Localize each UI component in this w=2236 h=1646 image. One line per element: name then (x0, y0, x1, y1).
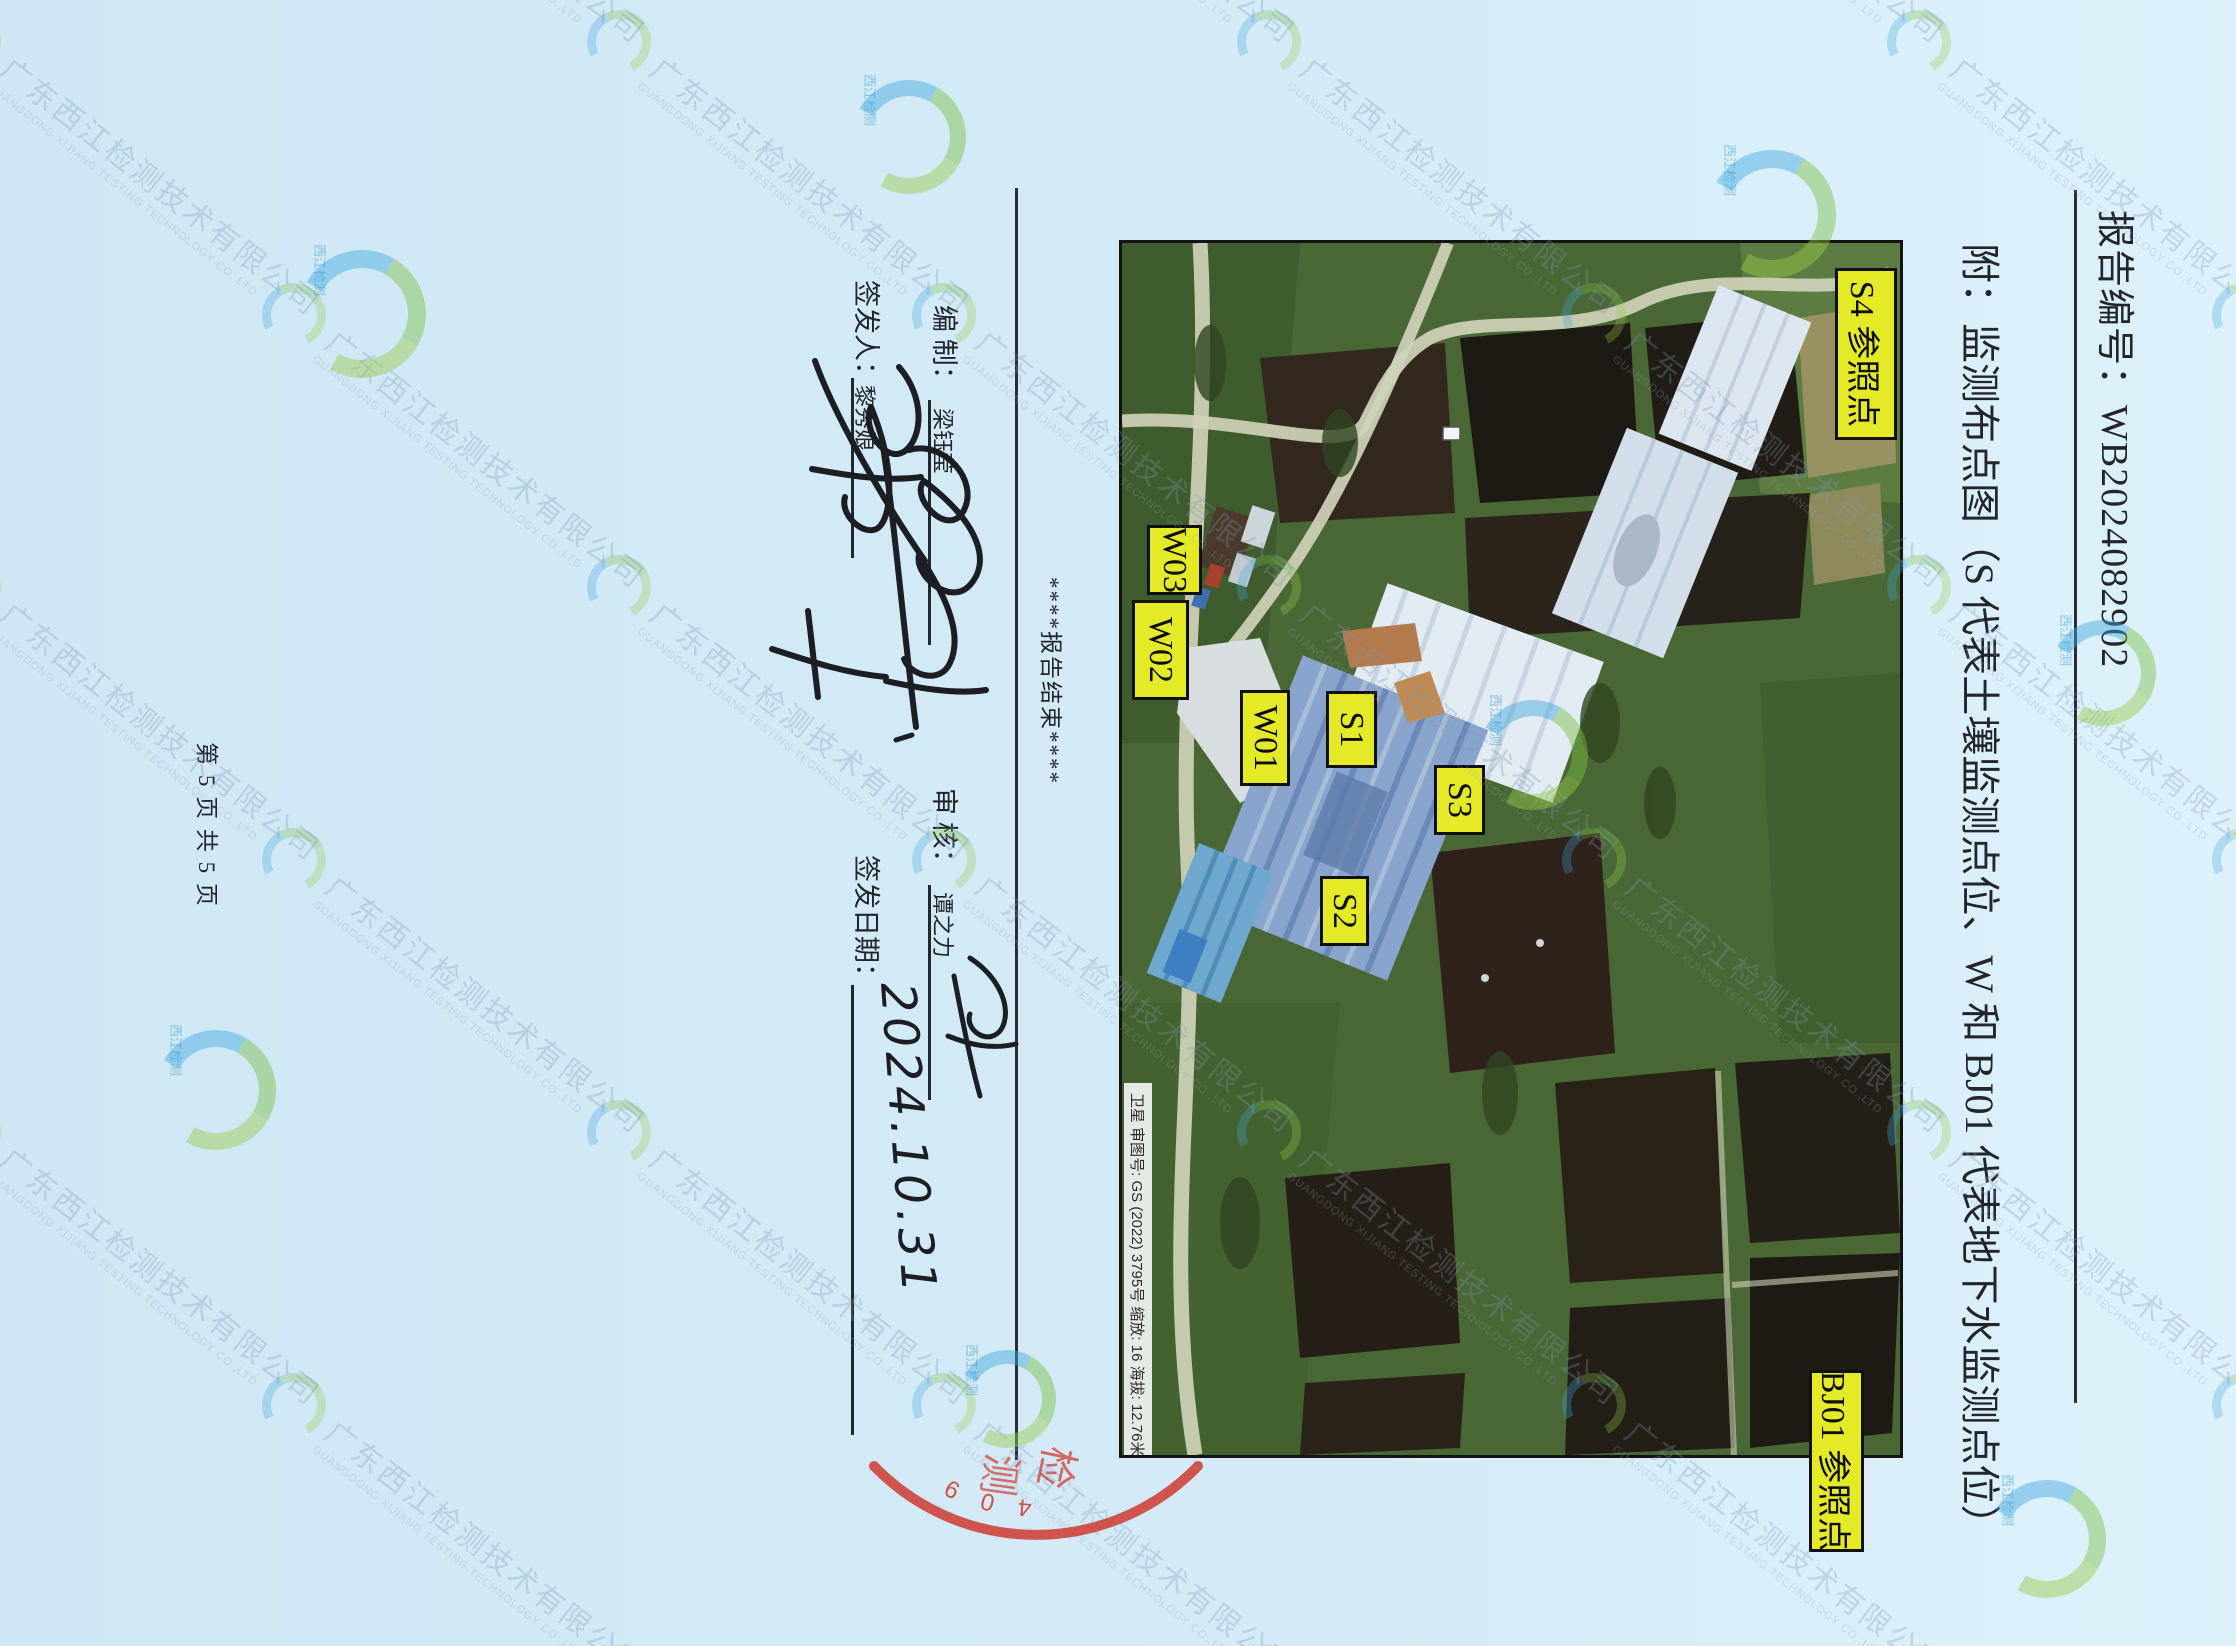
watermark-company-cn: 广东西江检测技术有限公司 (0, 46, 331, 324)
reviewed-by-label: 审 核： (927, 788, 966, 876)
xijiang-logo-icon (0, 2, 9, 83)
watermark-tile: 广东西江检测技术有限公司GUANGDONG XIJIANG TESTING TE… (574, 1632, 984, 1646)
xijiang-logo-icon (579, 2, 660, 83)
xijiang-logo-text: 西江检测 (1721, 144, 1740, 196)
issue-date-label: 签发日期： (849, 855, 888, 990)
watermark-tile: 广东西江检测技术有限公司GUANGDONG XIJIANG TESTING TE… (249, 1360, 659, 1646)
watermark-tile: 广东西江检测技术有限公司GUANGDONG XIJIANG TESTING TE… (0, 1087, 334, 1427)
watermark-tile: 广东西江检测技术有限公司GUANGDONG XIJIANG TESTING TE… (1549, 0, 1959, 65)
watermark-tile: 广东西江检测技术有限公司GUANGDONG XIJIANG TESTING TE… (1874, 542, 2236, 882)
issue-date-line (851, 985, 854, 1435)
watermark-company-cn: 广东西江检测技术有限公司 (642, 46, 981, 324)
watermark-company-en: GUANGDONG XIJIANG TESTING TECHNOLOGY CO.… (960, 1443, 1279, 1646)
xijiang-logo-icon (1879, 1637, 1960, 1646)
xijiang-logo-icon (579, 1092, 660, 1173)
watermark-tile: 广东西江检测技术有限公司GUANGDONG XIJIANG TESTING TE… (249, 815, 659, 1155)
footer-rule (1015, 188, 1018, 1460)
issue-date-handwritten: 2024.10.31 (869, 980, 947, 1298)
watermark-tile: 广东西江检测技术有限公司GUANGDONG XIJIANG TESTING TE… (0, 0, 334, 337)
map-label-s2: S2 (1320, 876, 1369, 946)
report-end-text: ****报告结束**** (1036, 577, 1070, 785)
page-number: 第 5 页 共 5 页 (192, 700, 226, 950)
watermark-company-en: GUANGDONG XIJIANG TESTING TECHNOLOGY CO.… (310, 353, 629, 606)
xijiang-logo-icon (284, 236, 441, 393)
xijiang-logo-icon (579, 547, 660, 628)
watermark-tile: 广东西江检测技术有限公司GUANGDONG XIJIANG TESTING TE… (1874, 1632, 2236, 1646)
watermark-company-cn: 广东西江检测技术有限公司 (317, 1409, 656, 1646)
xijiang-logo-icon (1229, 2, 1310, 83)
xijiang-logo-icon (0, 1092, 9, 1173)
watermark-company-en: GUANGDONG XIJIANG TESTING TECHNOLOGY CO.… (960, 0, 1279, 62)
report-page: 报告编号：WB2024082902 附：监测布点图（S 代表土壤监测点位、W 和… (0, 0, 2236, 1646)
xijiang-logo-text: 西江检测 (963, 1344, 982, 1396)
watermark-tile: 广东西江检测技术有限公司GUANGDONG XIJIANG TESTING TE… (1874, 0, 2236, 337)
map-label-w01: W01 (1240, 690, 1290, 786)
watermark-company-cn: 广东西江检测技术有限公司 (0, 591, 331, 869)
dirt-orange (1342, 623, 1422, 668)
watermark-tile: 广东西江检测技术有限公司GUANGDONG XIJIANG TESTING TE… (899, 0, 1309, 65)
watermark-tile: 广东西江检测技术有限公司GUANGDONG XIJIANG TESTING TE… (249, 0, 659, 65)
watermark-company-en: GUANGDONG XIJIANG TESTING TECHNOLOGY CO.… (310, 0, 629, 62)
map-label-s1: S1 (1326, 691, 1377, 768)
watermark-tile: 广东西江检测技术有限公司GUANGDONG XIJIANG TESTING TE… (249, 270, 659, 610)
xijiang-logo-icon (2204, 1365, 2236, 1446)
xijiang-logo-icon (0, 1637, 9, 1646)
watermark-tile: 广东西江检测技术有限公司GUANGDONG XIJIANG TESTING TE… (2199, 815, 2236, 1155)
satellite-map-graphic: 卫星 审图号: GS (2022) 3795号 缩放: 16 海拔: 12.76… (1122, 243, 1900, 1455)
watermark-company-en: GUANGDONG XIJIANG TESTING TECHNOLOGY CO.… (1610, 1443, 1929, 1646)
watermark-tile: 广东西江检测技术有限公司GUANGDONG XIJIANG TESTING TE… (0, 542, 334, 882)
map-label-w03: W03 (1147, 525, 1202, 595)
xijiang-logo-text: 西江检测 (861, 74, 880, 126)
watermark-company-en: GUANGDONG XIJIANG TESTING TECHNOLOGY CO.… (0, 625, 304, 878)
xijiang-logo-icon (254, 1365, 335, 1446)
xijiang-logo-icon (1229, 1637, 1310, 1646)
watermark-company-cn: 广东西江检测技术有限公司 (0, 1136, 331, 1414)
watermark-company-cn: 广东西江检测技术有限公司 (317, 319, 656, 597)
pond-center (1430, 833, 1615, 1073)
watermark-tile: 广东西江检测技术有限公司GUANGDONG XIJIANG TESTING TE… (2199, 270, 2236, 610)
watermark-company-cn: 广东西江检测技术有限公司 (317, 0, 656, 52)
xijiang-logo-icon (1879, 2, 1960, 83)
map-label-s3: S3 (1434, 765, 1485, 835)
scanned-report-screenshot: 报告编号：WB2024082902 附：监测布点图（S 代表土壤监测点位、W 和… (0, 0, 2236, 1646)
map-label-w02: W02 (1132, 600, 1189, 700)
xijiang-logo-icon (947, 1339, 1067, 1459)
watermark-company-en: GUANGDONG XIJIANG TESTING TECHNOLOGY CO.… (635, 80, 954, 333)
map-attribution-text: 卫星 审图号: GS (2022) 3795号 缩放: 16 海拔: 12.76… (1128, 1093, 1145, 1455)
svg-text:检: 检 (1027, 1442, 1082, 1493)
watermark-tile: 广东西江检测技术有限公司GUANGDONG XIJIANG TESTING TE… (2199, 1360, 2236, 1646)
watermark-company-cn: 广东西江检测技术有限公司 (1617, 0, 1956, 52)
xijiang-logo-icon (254, 820, 335, 901)
xijiang-logo-icon (254, 275, 335, 356)
xijiang-logo-icon (2204, 275, 2236, 356)
prepared-by-label: 编 制： (927, 305, 966, 393)
xijiang-logo-icon (2204, 820, 2236, 901)
signature-tanzhili (940, 948, 1030, 1108)
attachment-title: 附：监测布点图（S 代表土壤监测点位、W 和 BJ01 代表地下水监测点位） (1954, 243, 2012, 1545)
header-rule (2074, 190, 2077, 1403)
watermark-company-en: GUANGDONG XIJIANG TESTING TECHNOLOGY CO.… (0, 80, 304, 333)
watermark-tile: 广东西江检测技术有限公司GUANGDONG XIJIANG TESTING TE… (1874, 1087, 2236, 1427)
road-sign (1443, 427, 1460, 440)
xijiang-logo-text: 西江检测 (311, 244, 330, 296)
watermark-company-en: GUANGDONG XIJIANG TESTING TECHNOLOGY CO.… (1610, 0, 1929, 62)
report-number: 报告编号：WB2024082902 (2091, 210, 2146, 668)
xijiang-logo-icon (839, 67, 979, 207)
watermark-tile: 广东西江检测技术有限公司GUANGDONG XIJIANG TESTING TE… (0, 1632, 334, 1646)
pond-bottom-right (1285, 1163, 1460, 1358)
map-label-bj01: BJ01 参照点 (1809, 1370, 1864, 1552)
signature-lixiuniang (806, 355, 931, 575)
xijiang-logo-icon (0, 547, 9, 628)
xijiang-logo-icon (904, 1365, 985, 1446)
watermark-tile: 广东西江检测技术有限公司GUANGDONG XIJIANG TESTING TE… (1224, 1632, 1634, 1646)
watermark-company-en: GUANGDONG XIJIANG TESTING TECHNOLOGY CO.… (0, 1170, 304, 1423)
monitoring-points-map: 卫星 审图号: GS (2022) 3795号 缩放: 16 海拔: 12.76… (1119, 240, 1903, 1458)
watermark-company-en: GUANGDONG XIJIANG TESTING TECHNOLOGY CO.… (310, 1443, 629, 1646)
xijiang-logo-icon (579, 1637, 660, 1646)
xijiang-logo-icon (143, 1017, 290, 1164)
watermark-tile: 广东西江检测技术有限公司GUANGDONG XIJIANG TESTING TE… (2199, 0, 2236, 65)
watermark-tile: 广东西江检测技术有限公司GUANGDONG XIJIANG TESTING TE… (574, 0, 984, 337)
watermark-company-cn: 广东西江检测技术有限公司 (967, 0, 1306, 52)
watermark-company-cn: 广东西江检测技术有限公司 (317, 864, 656, 1142)
watermark-company-en: GUANGDONG XIJIANG TESTING TECHNOLOGY CO.… (310, 898, 629, 1151)
xijiang-logo-text: 西江检测 (167, 1024, 186, 1076)
map-label-s4: S4 参照点 (1835, 268, 1897, 440)
